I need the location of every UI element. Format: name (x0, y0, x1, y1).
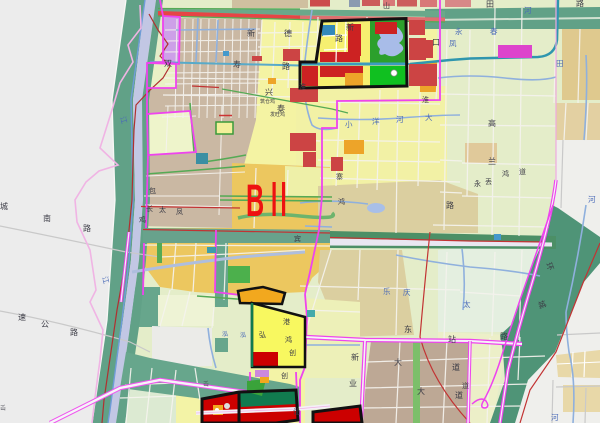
svg-text:淮: 淮 (422, 95, 429, 104)
svg-text:小: 小 (345, 120, 353, 129)
svg-text:河: 河 (551, 413, 559, 422)
svg-text:港: 港 (283, 317, 290, 326)
svg-text:路: 路 (500, 331, 508, 341)
svg-text:凤: 凤 (176, 208, 183, 216)
svg-text:河: 河 (396, 115, 404, 124)
svg-text:淮: 淮 (299, 82, 306, 91)
svg-text:鸡: 鸡 (139, 215, 146, 224)
svg-text:速: 速 (18, 313, 26, 322)
svg-text:寿: 寿 (233, 59, 241, 69)
svg-text:屲: 屲 (203, 380, 209, 388)
svg-text:大: 大 (425, 112, 433, 122)
svg-text:田: 田 (556, 59, 564, 68)
svg-text:路: 路 (576, 0, 584, 8)
svg-text:大: 大 (417, 386, 425, 396)
svg-text:鸿: 鸿 (285, 335, 292, 344)
svg-text:道: 道 (462, 381, 469, 390)
svg-text:创: 创 (289, 348, 296, 357)
svg-text:双: 双 (164, 59, 172, 68)
svg-text:讪: 讪 (293, 407, 300, 416)
svg-text:道: 道 (452, 362, 460, 372)
svg-text:东: 东 (404, 324, 412, 334)
svg-text:太: 太 (463, 299, 471, 309)
svg-text:山: 山 (383, 1, 390, 10)
svg-text:长: 长 (146, 204, 153, 213)
svg-text:发旺鸡: 发旺鸡 (270, 111, 285, 118)
svg-text:河: 河 (524, 6, 532, 15)
svg-text:口: 口 (432, 38, 440, 47)
svg-text:宾: 宾 (294, 234, 301, 243)
svg-text:路: 路 (446, 200, 454, 210)
svg-text:路: 路 (282, 61, 290, 71)
svg-text:路: 路 (335, 33, 343, 43)
svg-text:城: 城 (0, 202, 8, 211)
svg-text:大: 大 (394, 357, 402, 367)
svg-text:B: B (246, 175, 264, 226)
svg-text:道: 道 (455, 390, 463, 400)
svg-text:洋: 洋 (372, 116, 380, 126)
svg-text:南: 南 (43, 213, 51, 223)
svg-text:包: 包 (149, 186, 156, 195)
svg-text:业: 业 (349, 378, 357, 388)
svg-text:庆: 庆 (403, 287, 411, 297)
svg-text:德: 德 (284, 28, 292, 38)
svg-text:鸿: 鸿 (502, 169, 509, 178)
svg-text:路: 路 (70, 327, 78, 337)
svg-text:路: 路 (83, 223, 91, 233)
svg-text:高: 高 (488, 118, 496, 128)
svg-text:田: 田 (486, 0, 494, 9)
svg-text:筑仓鸡: 筑仓鸡 (260, 98, 275, 105)
svg-text:道: 道 (519, 167, 526, 176)
svg-text:永: 永 (474, 179, 481, 188)
svg-text:屲: 屲 (0, 404, 6, 412)
svg-text:弘: 弘 (259, 331, 266, 339)
svg-text:鸿: 鸿 (338, 197, 345, 206)
svg-text:寨: 寨 (336, 172, 343, 181)
svg-text:创: 创 (281, 371, 288, 380)
svg-text:兴: 兴 (265, 88, 273, 97)
svg-text:乐: 乐 (383, 286, 391, 296)
svg-text:春: 春 (490, 26, 498, 36)
svg-text:新: 新 (247, 28, 255, 38)
svg-text:泓: 泓 (240, 331, 246, 339)
svg-text:公: 公 (41, 320, 49, 329)
svg-text:永: 永 (455, 26, 463, 36)
svg-text:泓: 泓 (222, 330, 228, 338)
svg-text:新: 新 (346, 22, 354, 32)
svg-text:丢: 丢 (485, 177, 492, 186)
svg-text:河: 河 (588, 195, 596, 204)
svg-text:新: 新 (351, 352, 359, 362)
svg-text:兰: 兰 (488, 156, 496, 166)
svg-text:凤: 凤 (449, 39, 457, 48)
svg-text:站: 站 (448, 334, 456, 344)
svg-text:太: 太 (159, 205, 166, 214)
